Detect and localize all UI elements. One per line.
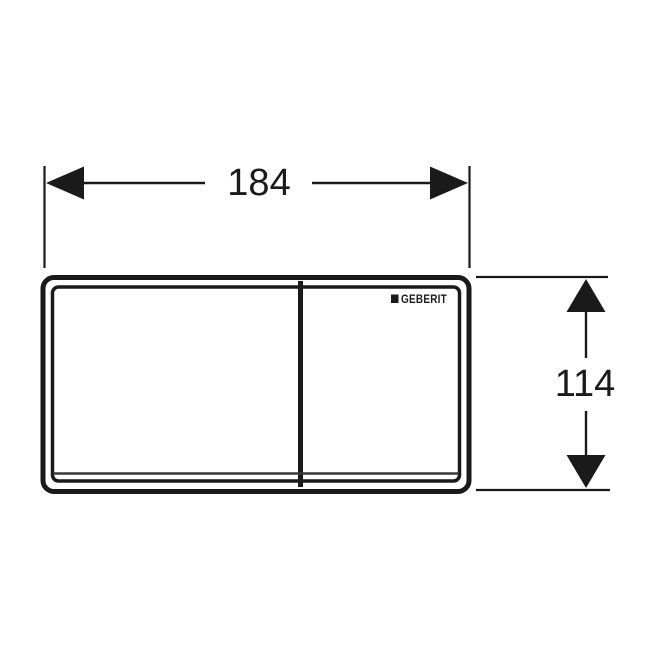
width-arrow-right-icon — [430, 167, 468, 200]
plate-inner-frame — [53, 287, 460, 481]
height-arrow-top-icon — [567, 279, 606, 312]
width-dimension-label: 184 — [227, 162, 290, 204]
geberit-logo: GEBERIT — [391, 292, 447, 306]
flush-plate: GEBERIT — [43, 278, 469, 492]
flush-plate-technical-drawing: 184 GEBERIT 114 — [0, 0, 650, 650]
geberit-logo-text: GEBERIT — [401, 292, 447, 306]
drawing-canvas: 184 GEBERIT 114 — [0, 0, 650, 650]
height-dimension: 114 — [476, 277, 615, 490]
geberit-logo-square-icon — [391, 295, 399, 304]
height-dimension-label: 114 — [555, 363, 616, 405]
height-arrow-bottom-icon — [567, 455, 606, 488]
width-dimension: 184 — [45, 162, 470, 268]
plate-outer-frame — [43, 278, 469, 492]
width-arrow-left-icon — [46, 167, 84, 200]
